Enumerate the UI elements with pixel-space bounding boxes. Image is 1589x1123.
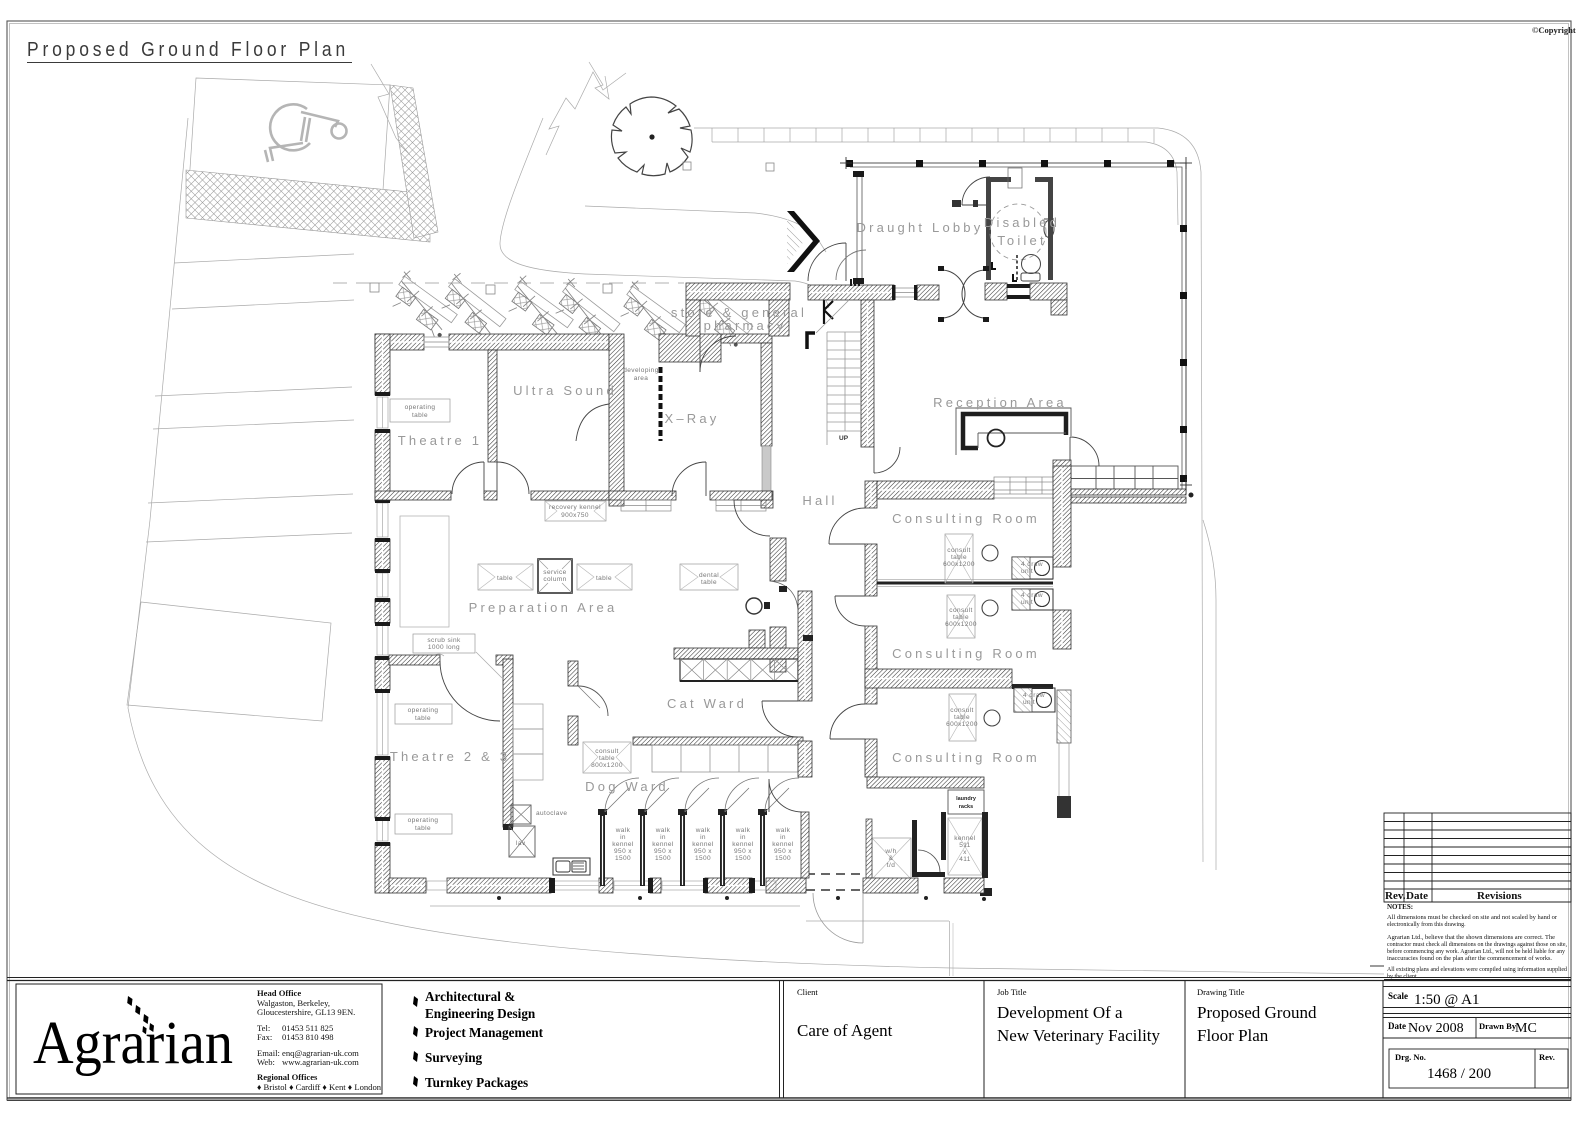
svg-text:in: in bbox=[780, 834, 786, 841]
svg-text:4 draw: 4 draw bbox=[1023, 692, 1045, 699]
svg-text:walk: walk bbox=[775, 827, 791, 834]
svg-text:Regional Offices: Regional Offices bbox=[257, 1072, 318, 1082]
svg-text:411: 411 bbox=[959, 856, 971, 863]
svg-text:800x1200: 800x1200 bbox=[591, 762, 623, 769]
svg-text:unit: unit bbox=[1023, 699, 1035, 706]
svg-text:Drawn By: Drawn By bbox=[1479, 1021, 1517, 1031]
svg-text:walk: walk bbox=[655, 827, 671, 834]
svg-text:kennel: kennel bbox=[612, 841, 634, 848]
svg-text:Hall: Hall bbox=[802, 493, 837, 508]
svg-text:Theatre 2 & 3: Theatre 2 & 3 bbox=[390, 749, 510, 764]
svg-text:600x1200: 600x1200 bbox=[945, 621, 977, 628]
svg-text:kennel: kennel bbox=[954, 835, 976, 842]
svg-text:01453 810 498: 01453 810 498 bbox=[282, 1032, 334, 1042]
svg-text:All dimensions must be checked: All dimensions must be checked on site a… bbox=[1387, 915, 1557, 921]
svg-text:950 x: 950 x bbox=[654, 848, 672, 855]
svg-text:unit: unit bbox=[1021, 599, 1033, 606]
svg-text:electronically from this drawi: electronically from this drawing. bbox=[1387, 921, 1466, 928]
svg-text:operating: operating bbox=[405, 404, 436, 411]
svg-text:950 x: 950 x bbox=[694, 848, 712, 855]
svg-text:Scale: Scale bbox=[1388, 991, 1408, 1001]
svg-text:X–Ray: X–Ray bbox=[664, 411, 719, 426]
svg-text:♦ Bristol ♦ Cardiff ♦ Kent: ♦ Bristol ♦ Cardiff ♦ Kent ♦ London bbox=[257, 1082, 382, 1092]
svg-text:Development Of a: Development Of a bbox=[997, 1003, 1123, 1022]
svg-text:area: area bbox=[634, 375, 649, 382]
svg-text:in: in bbox=[660, 834, 666, 841]
svg-text:1:50 @ A1: 1:50 @ A1 bbox=[1414, 992, 1480, 1008]
svg-text:operating: operating bbox=[408, 707, 439, 714]
svg-text:table: table bbox=[497, 575, 513, 582]
svg-text:1500: 1500 bbox=[695, 855, 711, 862]
svg-text:table: table bbox=[701, 579, 717, 586]
svg-text:dental: dental bbox=[699, 572, 719, 579]
svg-text:service: service bbox=[543, 569, 566, 576]
svg-text:Toilet: Toilet bbox=[997, 233, 1047, 248]
svg-text:column: column bbox=[543, 576, 566, 583]
svg-text:Agrarian: Agrarian bbox=[33, 1010, 233, 1077]
svg-text:Rev.: Rev. bbox=[1385, 890, 1406, 902]
svg-text:Fax:: Fax: bbox=[257, 1032, 272, 1042]
svg-text:in: in bbox=[740, 834, 746, 841]
svg-text:walk: walk bbox=[615, 827, 631, 834]
svg-text:consult: consult bbox=[595, 748, 618, 755]
svg-text:Consulting Room: Consulting Room bbox=[892, 646, 1040, 661]
svg-text:Date: Date bbox=[1388, 1021, 1406, 1031]
svg-text:Architectural &: Architectural & bbox=[425, 989, 515, 1004]
svg-text:&: & bbox=[889, 855, 894, 862]
svg-text:4 draw: 4 draw bbox=[1021, 592, 1043, 599]
svg-text:inaccuracies found on the plan: inaccuracies found on the plan after the… bbox=[1387, 955, 1553, 962]
svg-text:Job Title: Job Title bbox=[997, 987, 1027, 997]
svg-text:Drg. No.: Drg. No. bbox=[1395, 1052, 1426, 1062]
svg-text:kennel: kennel bbox=[772, 841, 794, 848]
svg-text:UP: UP bbox=[839, 435, 849, 442]
svg-text:1000 long: 1000 long bbox=[428, 644, 460, 651]
svg-text:Reception Area: Reception Area bbox=[933, 395, 1067, 410]
svg-text:Drawing Title: Drawing Title bbox=[1197, 987, 1245, 997]
svg-text:Nov 2008: Nov 2008 bbox=[1408, 1021, 1464, 1036]
svg-text:laundry: laundry bbox=[956, 796, 977, 802]
svg-text:table: table bbox=[953, 614, 969, 621]
svg-text:kennel: kennel bbox=[652, 841, 674, 848]
svg-text:Gloucestershire, GL13 9EN.: Gloucestershire, GL13 9EN. bbox=[257, 1007, 355, 1017]
svg-text:unit: unit bbox=[1021, 568, 1033, 575]
svg-text:scrub sink: scrub sink bbox=[427, 637, 461, 644]
svg-text:Dog Ward: Dog Ward bbox=[585, 779, 669, 794]
svg-text:kennel: kennel bbox=[692, 841, 714, 848]
svg-text:consult: consult bbox=[947, 547, 970, 554]
svg-text:Rev.: Rev. bbox=[1539, 1052, 1555, 1062]
svg-text:Consulting Room: Consulting Room bbox=[892, 511, 1040, 526]
svg-text:600x1200: 600x1200 bbox=[943, 561, 975, 568]
svg-text:Head Office: Head Office bbox=[257, 988, 301, 998]
svg-text:table: table bbox=[415, 825, 431, 832]
svg-text:contractor must check all dime: contractor must check all dimensions on … bbox=[1387, 942, 1567, 948]
svg-text:Consulting Room: Consulting Room bbox=[892, 750, 1040, 765]
svg-text:table: table bbox=[954, 714, 970, 721]
svg-text:table: table bbox=[412, 412, 428, 419]
svg-text:Floor Plan: Floor Plan bbox=[1197, 1026, 1269, 1045]
svg-text:950 x: 950 x bbox=[614, 848, 632, 855]
svg-text:Ultra Sound: Ultra Sound bbox=[513, 383, 617, 398]
svg-text:table: table bbox=[596, 575, 612, 582]
svg-text:in: in bbox=[620, 834, 626, 841]
svg-text:MC: MC bbox=[1515, 1021, 1537, 1036]
svg-text:autoclave: autoclave bbox=[536, 810, 567, 817]
svg-text:NOTES:: NOTES: bbox=[1387, 903, 1413, 911]
svg-text:950 x: 950 x bbox=[774, 848, 792, 855]
svg-text:©Copyright: ©Copyright bbox=[1532, 25, 1576, 35]
svg-text:consult: consult bbox=[950, 707, 973, 714]
svg-text:950 x: 950 x bbox=[734, 848, 752, 855]
svg-text:All existing plans and elevati: All existing plans and elevations were c… bbox=[1387, 966, 1567, 973]
svg-text:table: table bbox=[599, 755, 615, 762]
svg-text:consult: consult bbox=[949, 607, 972, 614]
svg-text:x: x bbox=[963, 849, 967, 856]
svg-text:Draught Lobby: Draught Lobby bbox=[857, 220, 984, 235]
svg-text:600x1200: 600x1200 bbox=[946, 721, 978, 728]
svg-text:Preparation Area: Preparation Area bbox=[469, 600, 618, 615]
svg-text:developing: developing bbox=[623, 367, 658, 374]
svg-text:Client: Client bbox=[797, 987, 818, 997]
svg-text:walk: walk bbox=[735, 827, 751, 834]
svg-text:lav: lav bbox=[516, 840, 526, 847]
svg-text:racks: racks bbox=[959, 804, 973, 810]
svg-text:4 draw: 4 draw bbox=[1021, 561, 1043, 568]
svg-text:Surveying: Surveying bbox=[425, 1050, 483, 1065]
svg-text:kennel: kennel bbox=[732, 841, 754, 848]
svg-text:New Veterinary Facility: New Veterinary Facility bbox=[997, 1026, 1161, 1045]
svg-text:www.agrarian-uk.com: www.agrarian-uk.com bbox=[282, 1057, 359, 1067]
svg-text:Cat Ward: Cat Ward bbox=[667, 696, 747, 711]
svg-text:recovery kennel: recovery kennel bbox=[549, 504, 601, 511]
svg-text:table: table bbox=[951, 554, 967, 561]
svg-text:pharmacy: pharmacy bbox=[704, 318, 787, 333]
svg-text:Disabled: Disabled bbox=[984, 215, 1060, 230]
svg-text:w/h: w/h bbox=[884, 848, 896, 855]
svg-text:900x750: 900x750 bbox=[561, 512, 589, 519]
svg-text:Date: Date bbox=[1406, 890, 1428, 902]
svg-text:Revisions: Revisions bbox=[1477, 890, 1522, 902]
svg-text:511: 511 bbox=[959, 842, 971, 849]
svg-text:Web:: Web: bbox=[257, 1057, 275, 1067]
svg-text:Theatre 1: Theatre 1 bbox=[398, 433, 482, 448]
svg-text:Agrarian Ltd., believe that th: Agrarian Ltd., believe that the shown di… bbox=[1387, 935, 1555, 941]
svg-text:table: table bbox=[415, 715, 431, 722]
svg-text:t/d: t/d bbox=[887, 862, 895, 869]
svg-text:1500: 1500 bbox=[655, 855, 671, 862]
svg-text:walk: walk bbox=[695, 827, 711, 834]
svg-text:1500: 1500 bbox=[775, 855, 791, 862]
svg-text:in: in bbox=[700, 834, 706, 841]
svg-text:Turnkey Packages: Turnkey Packages bbox=[425, 1075, 528, 1090]
svg-text:1500: 1500 bbox=[615, 855, 631, 862]
svg-text:Care of Agent: Care of Agent bbox=[797, 1021, 893, 1040]
svg-text:Proposed Ground Floor Plan: Proposed Ground Floor Plan bbox=[27, 38, 349, 61]
svg-text:Engineering Design: Engineering Design bbox=[425, 1006, 536, 1021]
svg-text:before commencing any work. Ag: before commencing any work. Agrarian Ltd… bbox=[1387, 948, 1565, 955]
svg-text:Project Management: Project Management bbox=[425, 1025, 544, 1040]
svg-text:1500: 1500 bbox=[735, 855, 751, 862]
svg-text:operating: operating bbox=[408, 817, 439, 824]
svg-text:Proposed Ground: Proposed Ground bbox=[1197, 1003, 1317, 1022]
svg-text:1468 / 200: 1468 / 200 bbox=[1427, 1066, 1491, 1082]
